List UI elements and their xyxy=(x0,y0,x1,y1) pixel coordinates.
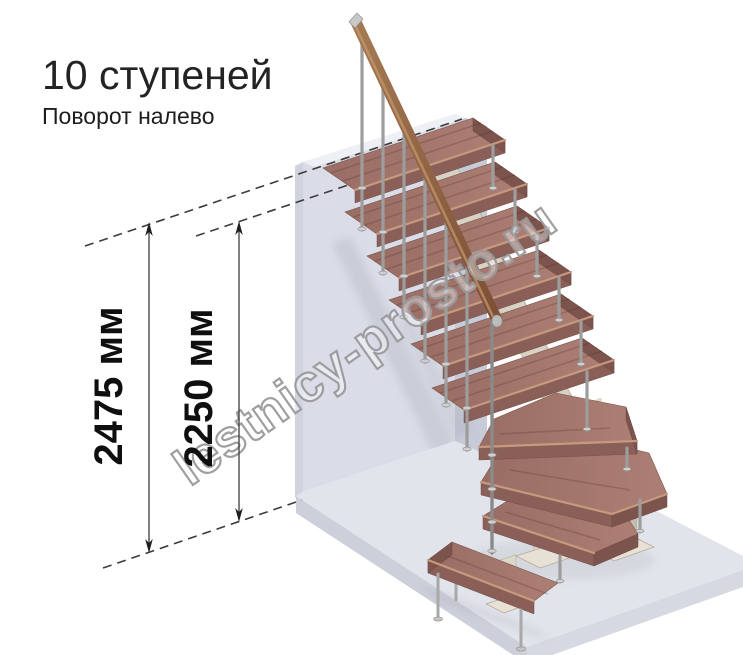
rod-flange xyxy=(442,362,450,366)
rod-flange xyxy=(488,549,496,553)
rod-flange xyxy=(556,579,564,583)
rod-flange xyxy=(463,406,471,410)
rod-flange xyxy=(533,274,541,278)
rod-flange xyxy=(358,227,366,231)
rod-flange xyxy=(379,271,387,275)
dimension-label-total: 2475 мм xyxy=(87,306,131,465)
rod-flange xyxy=(488,520,496,524)
rod-flange xyxy=(488,453,496,457)
leg-foot xyxy=(517,647,526,651)
leg-foot xyxy=(434,617,443,621)
rod-flange xyxy=(463,447,471,451)
rod-flange xyxy=(555,318,563,322)
dimension-label-landing: 2250 мм xyxy=(177,308,221,467)
rod-flange xyxy=(379,230,387,234)
rod-flange xyxy=(442,403,450,407)
rod-flange xyxy=(489,186,497,190)
rod-flange xyxy=(358,186,366,190)
rod-flange xyxy=(636,529,644,533)
rod-flange xyxy=(488,487,496,491)
page-subtitle: Поворот налево xyxy=(42,103,215,129)
staircase-illustration-page: lestnicy-prosto.ru 2475 мм 2250 мм 10 ст… xyxy=(0,0,743,655)
rod-flange xyxy=(421,359,429,363)
rod-flange xyxy=(577,362,585,366)
scene-svg: lestnicy-prosto.ru 2475 мм 2250 мм 10 ст… xyxy=(0,0,743,655)
page-title: 10 ступеней xyxy=(42,52,273,98)
rod-flange xyxy=(583,427,591,431)
wall-left-edge-face xyxy=(295,162,303,498)
rod-flange xyxy=(623,467,631,471)
handrail-end-ferrule xyxy=(492,315,502,327)
rod-flange xyxy=(400,274,408,278)
